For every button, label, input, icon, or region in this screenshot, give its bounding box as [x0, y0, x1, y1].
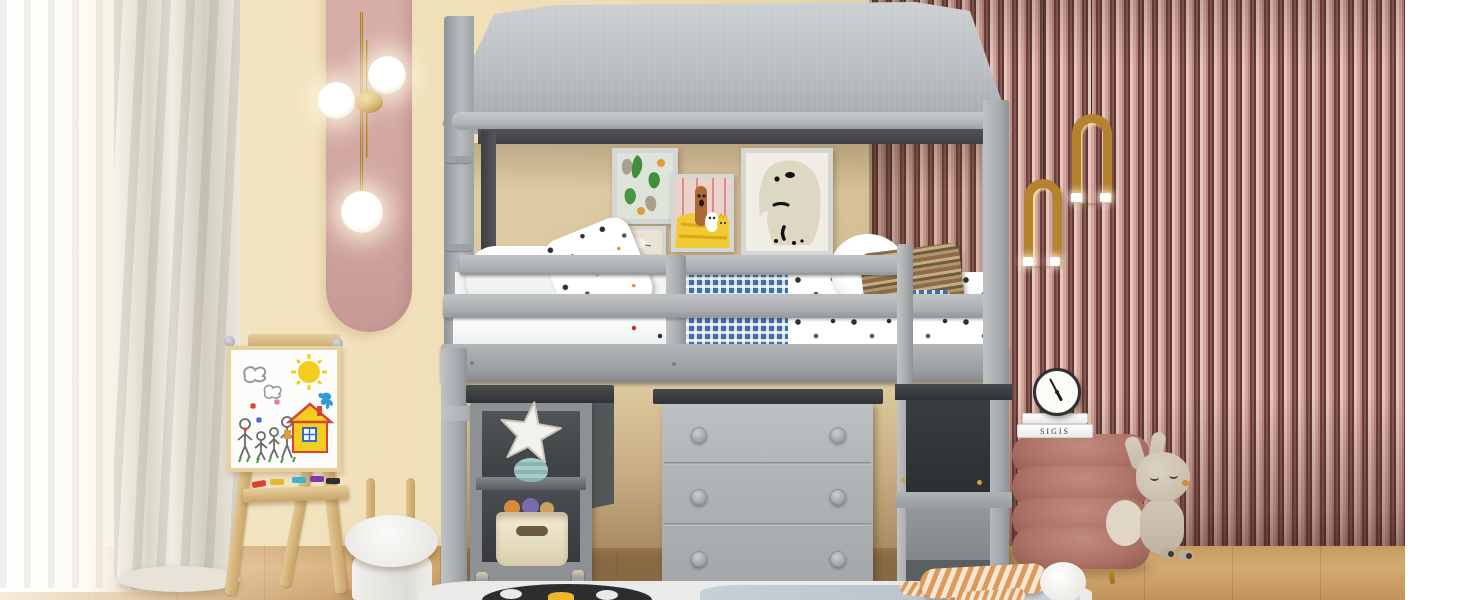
bunny-eye [1150, 474, 1159, 481]
bunny-head [1136, 452, 1190, 502]
book-spine-text: SIGIS [1040, 427, 1070, 436]
storage-basket [496, 512, 568, 566]
drawer-knob [830, 489, 846, 505]
starfish-decor [496, 400, 564, 466]
bed-rear-left-post [481, 131, 496, 258]
marker-blue [292, 477, 306, 483]
penguin-eye-patch [596, 590, 618, 600]
pendant-cable [1043, 0, 1044, 182]
sconce-mount [355, 91, 383, 113]
canopy-tie [446, 244, 472, 251]
ladder-top-shelf [895, 384, 1012, 400]
easel-whiteboard [227, 346, 341, 472]
bunny-tail [1106, 500, 1144, 546]
bunny-nose [1182, 480, 1189, 486]
ladder-peg [977, 480, 982, 485]
ivory-curtain [114, 0, 240, 590]
drawer-knob [691, 427, 707, 443]
bed-left-post [441, 348, 467, 596]
book-bottom: SIGIS [1017, 424, 1093, 438]
marker-purple [310, 476, 324, 482]
gold-arch-pendant-large [1072, 114, 1112, 203]
bedroom-scene: SIGIS [0, 0, 1464, 600]
basket-handle [516, 526, 548, 536]
marker-yellow [270, 479, 284, 485]
art-frame-polar-bear [741, 148, 833, 256]
pendant-cable [1091, 0, 1092, 118]
screw [470, 361, 474, 365]
image-white-margin [1405, 0, 1464, 600]
screw [672, 362, 676, 366]
canopy-tie [446, 156, 472, 163]
pink-oval-wall-panel [326, 0, 412, 332]
marker-black [326, 478, 340, 484]
ladder-peg [901, 478, 906, 483]
sconce-globe-left [318, 82, 355, 119]
bunny-toe [1186, 553, 1192, 559]
drawer-knob [830, 427, 846, 443]
ladder-panel [906, 508, 990, 560]
striped-doll-head [1040, 562, 1086, 600]
table-clock [1033, 368, 1081, 416]
art-frame-abstract [612, 148, 678, 224]
guardrail-lower-bar [443, 294, 1008, 318]
stool-cushion [345, 515, 438, 567]
sconce-globe-bottom [341, 191, 383, 233]
curtain-hem [118, 566, 240, 592]
drawer-knob [691, 489, 707, 505]
clock-center [1055, 390, 1059, 394]
gold-arch-pendant-small [1024, 179, 1062, 266]
penguin-beak [548, 592, 574, 600]
roof-underside-shadow [478, 129, 1002, 144]
pendant-bulb [1071, 193, 1082, 202]
dresser-top-slab [653, 389, 883, 404]
canopy-frame-bar [452, 112, 1004, 130]
bunny-eye [1169, 472, 1178, 479]
pendant-bulb [1050, 257, 1060, 266]
bunny-body [1140, 498, 1184, 554]
pendant-bulb [1023, 257, 1033, 266]
art-frame-bear-dog-cat [671, 174, 734, 252]
ladder-step [895, 492, 1012, 508]
drawer-divider [664, 462, 871, 465]
drawer-knob [691, 551, 707, 567]
sconce-globe-right [368, 56, 406, 94]
penguin-eye-patch [500, 589, 522, 599]
drawer-divider [664, 523, 871, 526]
cart-side-panel [592, 396, 614, 509]
bed-frame-board [441, 344, 1009, 382]
pendant-bulb [1100, 193, 1111, 202]
bunny-toe [1168, 551, 1174, 557]
drawer-knob [830, 551, 846, 567]
